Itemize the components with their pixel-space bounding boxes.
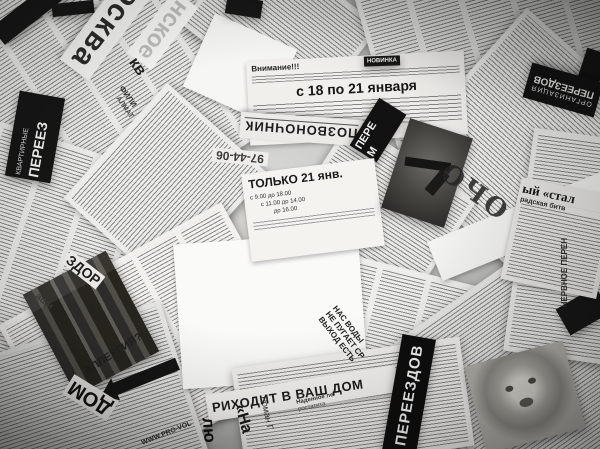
novinka-chip: НОВИНКА [364, 55, 400, 66]
schedule-ad-clipping: ТОЛЬКО 21 янв. с 9.00 до 18.00 с 11.00 д… [241, 158, 385, 262]
lyu-fragment-text: лю [198, 417, 220, 444]
novinka-text: НОВИНКА [367, 57, 397, 64]
newspaper-collage-photo: осква нское КВАРТИРНЫЕ ПЕРЕЕЗ кв ФИЛИ АЛ… [0, 0, 600, 449]
nervnoe-text: НЕРВНОЕ ПЕРЕН [560, 238, 569, 307]
nervnoe-vertical-text: НЕРВНОЕ ПЕРЕН [560, 238, 569, 308]
spine-ad-title: ПОЗВОНОЧНИК [244, 117, 358, 141]
